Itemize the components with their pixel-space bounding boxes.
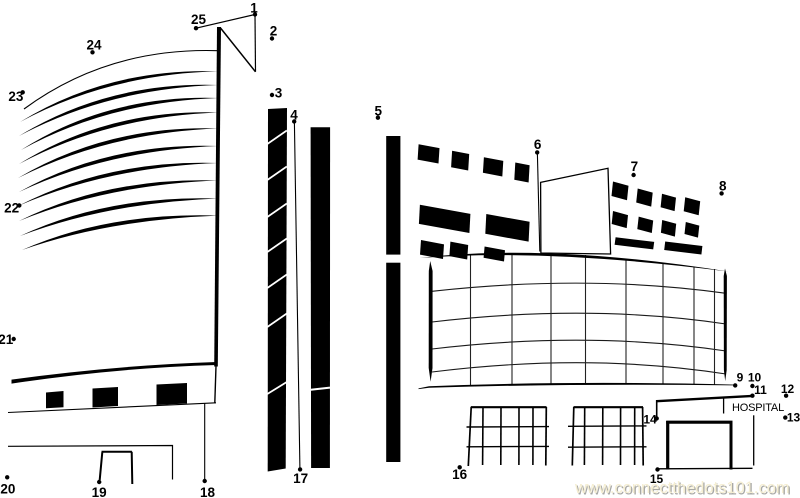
svg-text:HOSPITAL: HOSPITAL (732, 402, 784, 414)
svg-text:20: 20 (0, 482, 15, 497)
svg-text:16: 16 (452, 467, 468, 482)
svg-text:3: 3 (275, 86, 283, 101)
svg-text:7: 7 (631, 159, 639, 174)
svg-text:www.connectthedots101.com: www.connectthedots101.com (574, 479, 790, 497)
svg-text:21: 21 (0, 332, 14, 347)
svg-text:13: 13 (787, 411, 800, 425)
svg-text:23: 23 (8, 89, 24, 104)
svg-text:25: 25 (191, 12, 207, 27)
svg-text:4: 4 (290, 108, 298, 123)
svg-text:14: 14 (643, 413, 657, 427)
svg-text:22: 22 (4, 201, 19, 216)
svg-text:8: 8 (719, 179, 727, 194)
svg-text:12: 12 (781, 382, 795, 396)
svg-text:6: 6 (534, 137, 542, 152)
svg-text:5: 5 (375, 104, 383, 119)
svg-text:9: 9 (737, 371, 744, 385)
svg-text:24: 24 (86, 38, 102, 53)
svg-text:2: 2 (270, 24, 278, 39)
svg-text:19: 19 (92, 485, 107, 498)
svg-text:1: 1 (250, 1, 258, 16)
svg-text:11: 11 (754, 383, 767, 397)
svg-text:17: 17 (293, 471, 308, 486)
svg-text:18: 18 (200, 485, 216, 498)
